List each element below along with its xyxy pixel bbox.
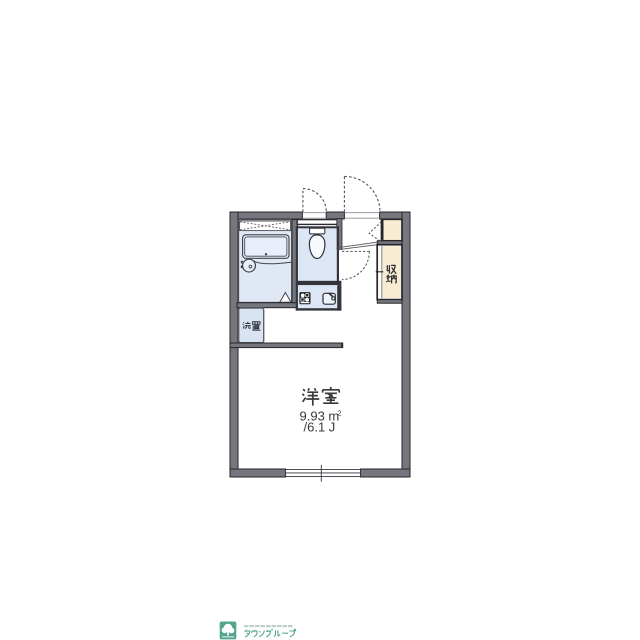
svg-text:2: 2 [338, 409, 342, 418]
svg-text:/6.1 J: /6.1 J [304, 419, 336, 434]
